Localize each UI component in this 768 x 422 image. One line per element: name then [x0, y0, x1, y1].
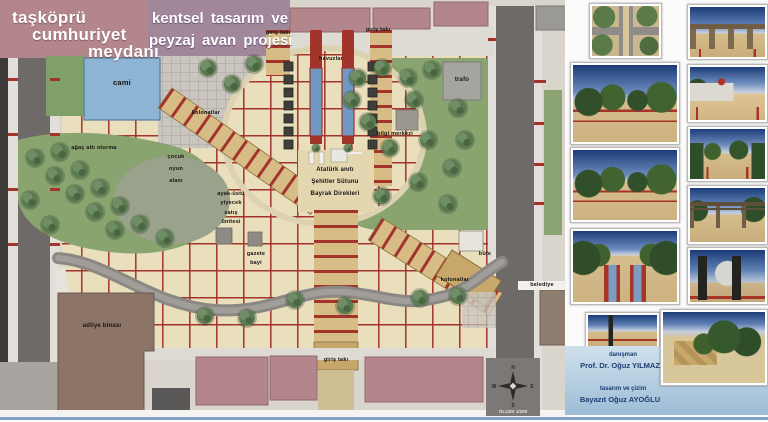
- page-title-line2: cumhuriyet: [32, 26, 127, 43]
- lawn-east: [544, 90, 562, 235]
- label-bilgi-merkezi: bilgi merkezi: [366, 131, 424, 138]
- label-kolonatlar-nw: kolonatlar: [180, 110, 232, 117]
- flagplaza-render-image: [690, 67, 765, 120]
- label-giris-taki-s: giriş takı: [314, 357, 358, 364]
- aerial-render-image: [592, 6, 659, 56]
- pole-render-image: [588, 315, 657, 347]
- render-tree-lined-path-view: [687, 126, 768, 182]
- south-walk: [318, 370, 354, 415]
- pergola-render-image: [690, 188, 765, 242]
- render-plaza-trees-perspective: [570, 147, 680, 223]
- label-giris-taki-ne: giriş takı: [356, 27, 400, 34]
- lawn-strip: [46, 56, 86, 116]
- park-render-image: [573, 65, 677, 142]
- compass-w: W: [492, 384, 497, 390]
- render-aerial-plan-view: [589, 3, 662, 59]
- compass-block: N E S W ÖLÇEK 1/200: [486, 358, 540, 416]
- page-subtitle-line2: peyzaj avan projesi: [149, 33, 293, 48]
- presentation-board: N E S W ÖLÇEK 1/200 cami giriş takı giri…: [0, 0, 768, 422]
- belediye-building: [540, 290, 565, 345]
- label-ayak-ustu: ayak-üstü yiyecek satış ünitesi: [204, 190, 258, 227]
- bottom-border-line: [0, 417, 768, 420]
- label-monument: Atatürk anıtı Şehitler Sütunu Bayrak Dir…: [288, 164, 382, 200]
- label-kolonatlar-se: kolonatlar: [428, 277, 482, 284]
- pools-render-image: [573, 231, 677, 302]
- advisor-label: danışman: [575, 352, 671, 358]
- render-pools-axis-perspective: [570, 228, 680, 305]
- label-gazete-bayi: gazete bayi: [236, 250, 276, 268]
- label-cocuk-oyun-alani: çocuk oyun alanı: [152, 152, 200, 187]
- render-colonnade-axis-view: [687, 4, 768, 60]
- label-cami: cami: [86, 78, 158, 88]
- render-flag-plaza-view: [687, 64, 768, 123]
- page-subtitle-line1: kentsel tasarım ve: [152, 11, 288, 26]
- colonnade-render-image: [690, 7, 765, 57]
- label-trafo: trafo: [444, 76, 480, 84]
- render-terraced-garden-view: [660, 309, 768, 386]
- label-adliye: adliye binası: [68, 322, 136, 330]
- axis-walkway: [314, 210, 358, 342]
- page-title-line1: taşköprü: [12, 9, 86, 26]
- label-agac-alti-oturma: ağaç altı oturma: [56, 145, 132, 152]
- designer-label: tasarım ve çizim: [575, 386, 671, 392]
- label-bufe: büfe: [470, 251, 500, 258]
- render-pergola-frame-view: [687, 185, 768, 245]
- adliye-building: [58, 293, 154, 411]
- render-dark-columns-plaza-view: [687, 247, 768, 305]
- scale-text: ÖLÇEK 1/200: [499, 408, 528, 414]
- label-havuzlar: havuzlar: [302, 56, 360, 63]
- advisor-name: Prof. Dr. Oğuz YILMAZ: [565, 361, 675, 370]
- label-belediye: belediye: [518, 281, 566, 290]
- darkcols-render-image: [690, 250, 765, 302]
- render-park-walkway-perspective: [570, 62, 680, 145]
- path-render-image: [690, 129, 765, 179]
- site-plan-graphic: N E S W ÖLÇEK 1/200: [0, 0, 565, 419]
- terrace-render-image: [663, 312, 765, 383]
- plaza-render-image: [573, 150, 677, 220]
- site-plan: N E S W ÖLÇEK 1/200 cami giriş takı giri…: [0, 0, 565, 419]
- designer-name: Bayazıt Oğuz AYOĞLU: [563, 395, 677, 404]
- compass-n: N: [511, 365, 515, 371]
- cami-building: [84, 58, 160, 120]
- render-entry-pole-view: [585, 312, 660, 350]
